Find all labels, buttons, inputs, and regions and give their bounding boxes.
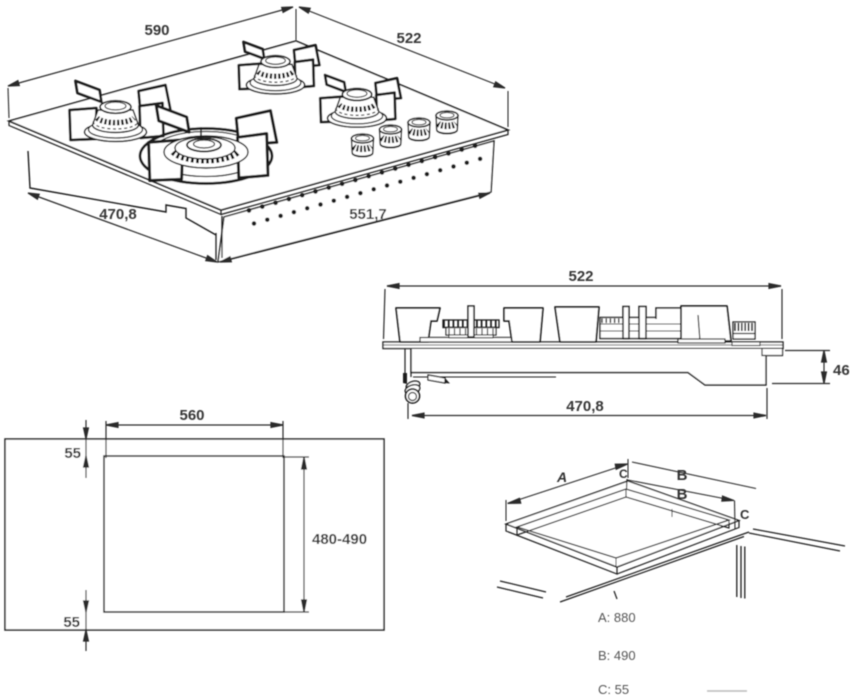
svg-text:C: 55: C: 55 [598,682,629,697]
svg-text:470,8: 470,8 [99,206,137,223]
svg-text:522: 522 [396,30,421,47]
svg-text:A: 880: A: 880 [598,610,636,625]
svg-text:B: B [677,467,688,484]
svg-text:522: 522 [568,268,593,285]
svg-text:470,8: 470,8 [566,398,604,415]
svg-text:55: 55 [63,614,80,631]
svg-text:551,7: 551,7 [349,206,387,223]
svg-text:B: 490: B: 490 [598,648,636,663]
svg-text:480-490: 480-490 [312,531,367,548]
svg-text:B: B [677,486,688,503]
svg-text:590: 590 [144,22,169,39]
svg-text:C: C [619,467,628,481]
svg-text:46: 46 [833,362,850,379]
svg-text:560: 560 [179,407,204,424]
svg-text:C: C [740,507,750,522]
svg-text:55: 55 [64,445,81,462]
svg-text:A: A [556,469,567,485]
